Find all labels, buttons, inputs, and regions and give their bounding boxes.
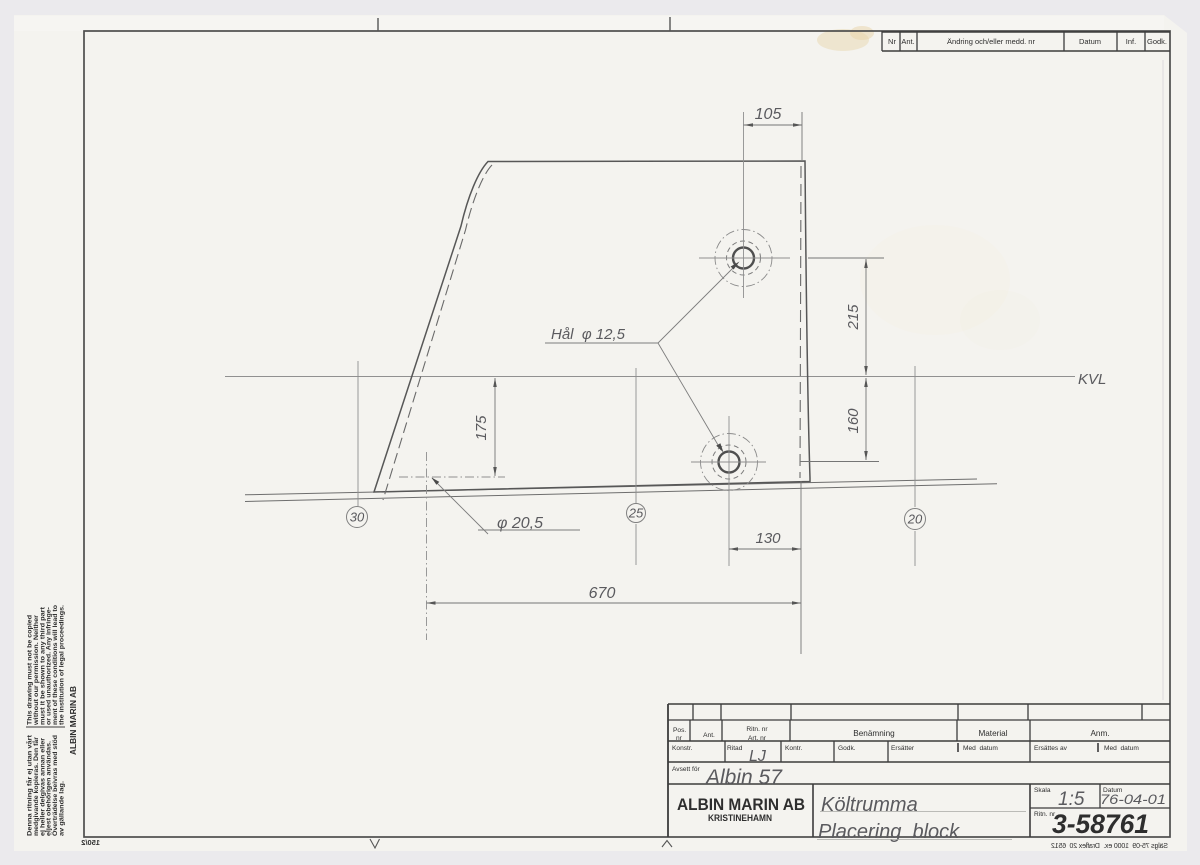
svg-text:or used unauthorized. Any infr: or used unauthorized. Any infringe- [47,607,53,725]
svg-text:LJ: LJ [749,748,767,765]
svg-text:without our permission. Neithe: without our permission. Neither [34,614,40,726]
svg-text:Benämning: Benämning [853,729,895,738]
svg-text:Material: Material [978,729,1007,738]
svg-text:670: 670 [589,585,616,602]
svg-text:Ritn. nr: Ritn. nr [746,726,768,733]
svg-text:160: 160 [845,408,862,434]
svg-text:Költrumma: Költrumma [821,794,918,816]
svg-text:Pos.: Pos. [673,727,686,734]
svg-text:150/2: 150/2 [81,838,100,847]
svg-text:Ersättes av: Ersättes av [1034,745,1068,752]
svg-text:Albin 57: Albin 57 [704,766,783,789]
svg-text:Denna ritning får ej utan vårt: Denna ritning får ej utan vårt [27,735,34,836]
svg-text:medgivande kopieras. Den får: medgivande kopieras. Den får [33,736,40,836]
svg-text:1:5: 1:5 [1058,789,1085,810]
svg-text:Med datum: Med datum [1104,745,1139,752]
svg-text:eljest obehörigen användas.: eljest obehörigen användas. [47,741,53,836]
svg-text:Godk.: Godk. [838,745,856,752]
svg-text:Anm.: Anm. [1090,729,1109,738]
svg-text:the institution of legal proce: the institution of legal proceedings. [60,605,66,725]
svg-text:130: 130 [755,530,781,547]
svg-text:30: 30 [350,510,365,525]
svg-text:ment of these conditions will: ment of these conditions will lead to [53,605,59,725]
svg-text:215: 215 [845,304,862,331]
svg-text:This drawing must not be copie: This drawing must not be copied [28,615,34,725]
svg-text:av gällande lag.: av gällande lag. [60,781,66,836]
svg-text:175: 175 [473,415,490,441]
svg-text:Ändring och/eller medd. nr: Ändring och/eller medd. nr [947,37,1035,46]
svg-text:Med datum: Med datum [963,745,998,752]
svg-text:Nr: Nr [888,37,896,46]
svg-text:Avsett för: Avsett för [672,766,701,773]
svg-text:Godk.: Godk. [1147,37,1167,46]
svg-text:Ersätter: Ersätter [891,745,915,752]
svg-text:25: 25 [628,506,644,521]
svg-text:3-58761: 3-58761 [1052,809,1149,839]
svg-text:Sälgs 75-09 1000 ex. Draflex: Sälgs 75-09 1000 ex. Draflex 20 6512 [1051,843,1168,850]
svg-text:20: 20 [907,512,923,527]
svg-text:Ritad: Ritad [727,745,743,752]
svg-text:Inf.: Inf. [1126,37,1136,46]
svg-text:Art. nr: Art. nr [748,735,767,742]
svg-text:Överträdelse beivras med stöd: Överträdelse beivras med stöd [52,735,59,836]
svg-text:Skala: Skala [1034,787,1051,794]
svg-text:Kontr.: Kontr. [785,745,802,752]
svg-text:ej heller delgivas annan eller: ej heller delgivas annan eller [40,737,46,836]
svg-text:ALBIN MARIN AB: ALBIN MARIN AB [677,795,805,814]
svg-text:76-04-01: 76-04-01 [1100,792,1166,807]
svg-text:nr: nr [676,735,683,742]
svg-text:KVL: KVL [1078,371,1106,388]
svg-text:φ 20,5: φ 20,5 [497,515,543,532]
svg-text:Hål φ 12,5: Hål φ 12,5 [551,326,626,343]
svg-text:Datum: Datum [1079,37,1101,46]
svg-text:must it be shown to any third: must it be shown to any third part [40,607,46,725]
svg-text:105: 105 [755,106,782,123]
svg-text:Konstr.: Konstr. [672,745,693,752]
svg-text:KRISTINEHAMN: KRISTINEHAMN [708,813,772,823]
svg-text:ALBIN MARIN AB: ALBIN MARIN AB [68,686,78,755]
svg-text:Ant.: Ant. [703,732,715,739]
svg-text:Ant.: Ant. [901,37,914,46]
